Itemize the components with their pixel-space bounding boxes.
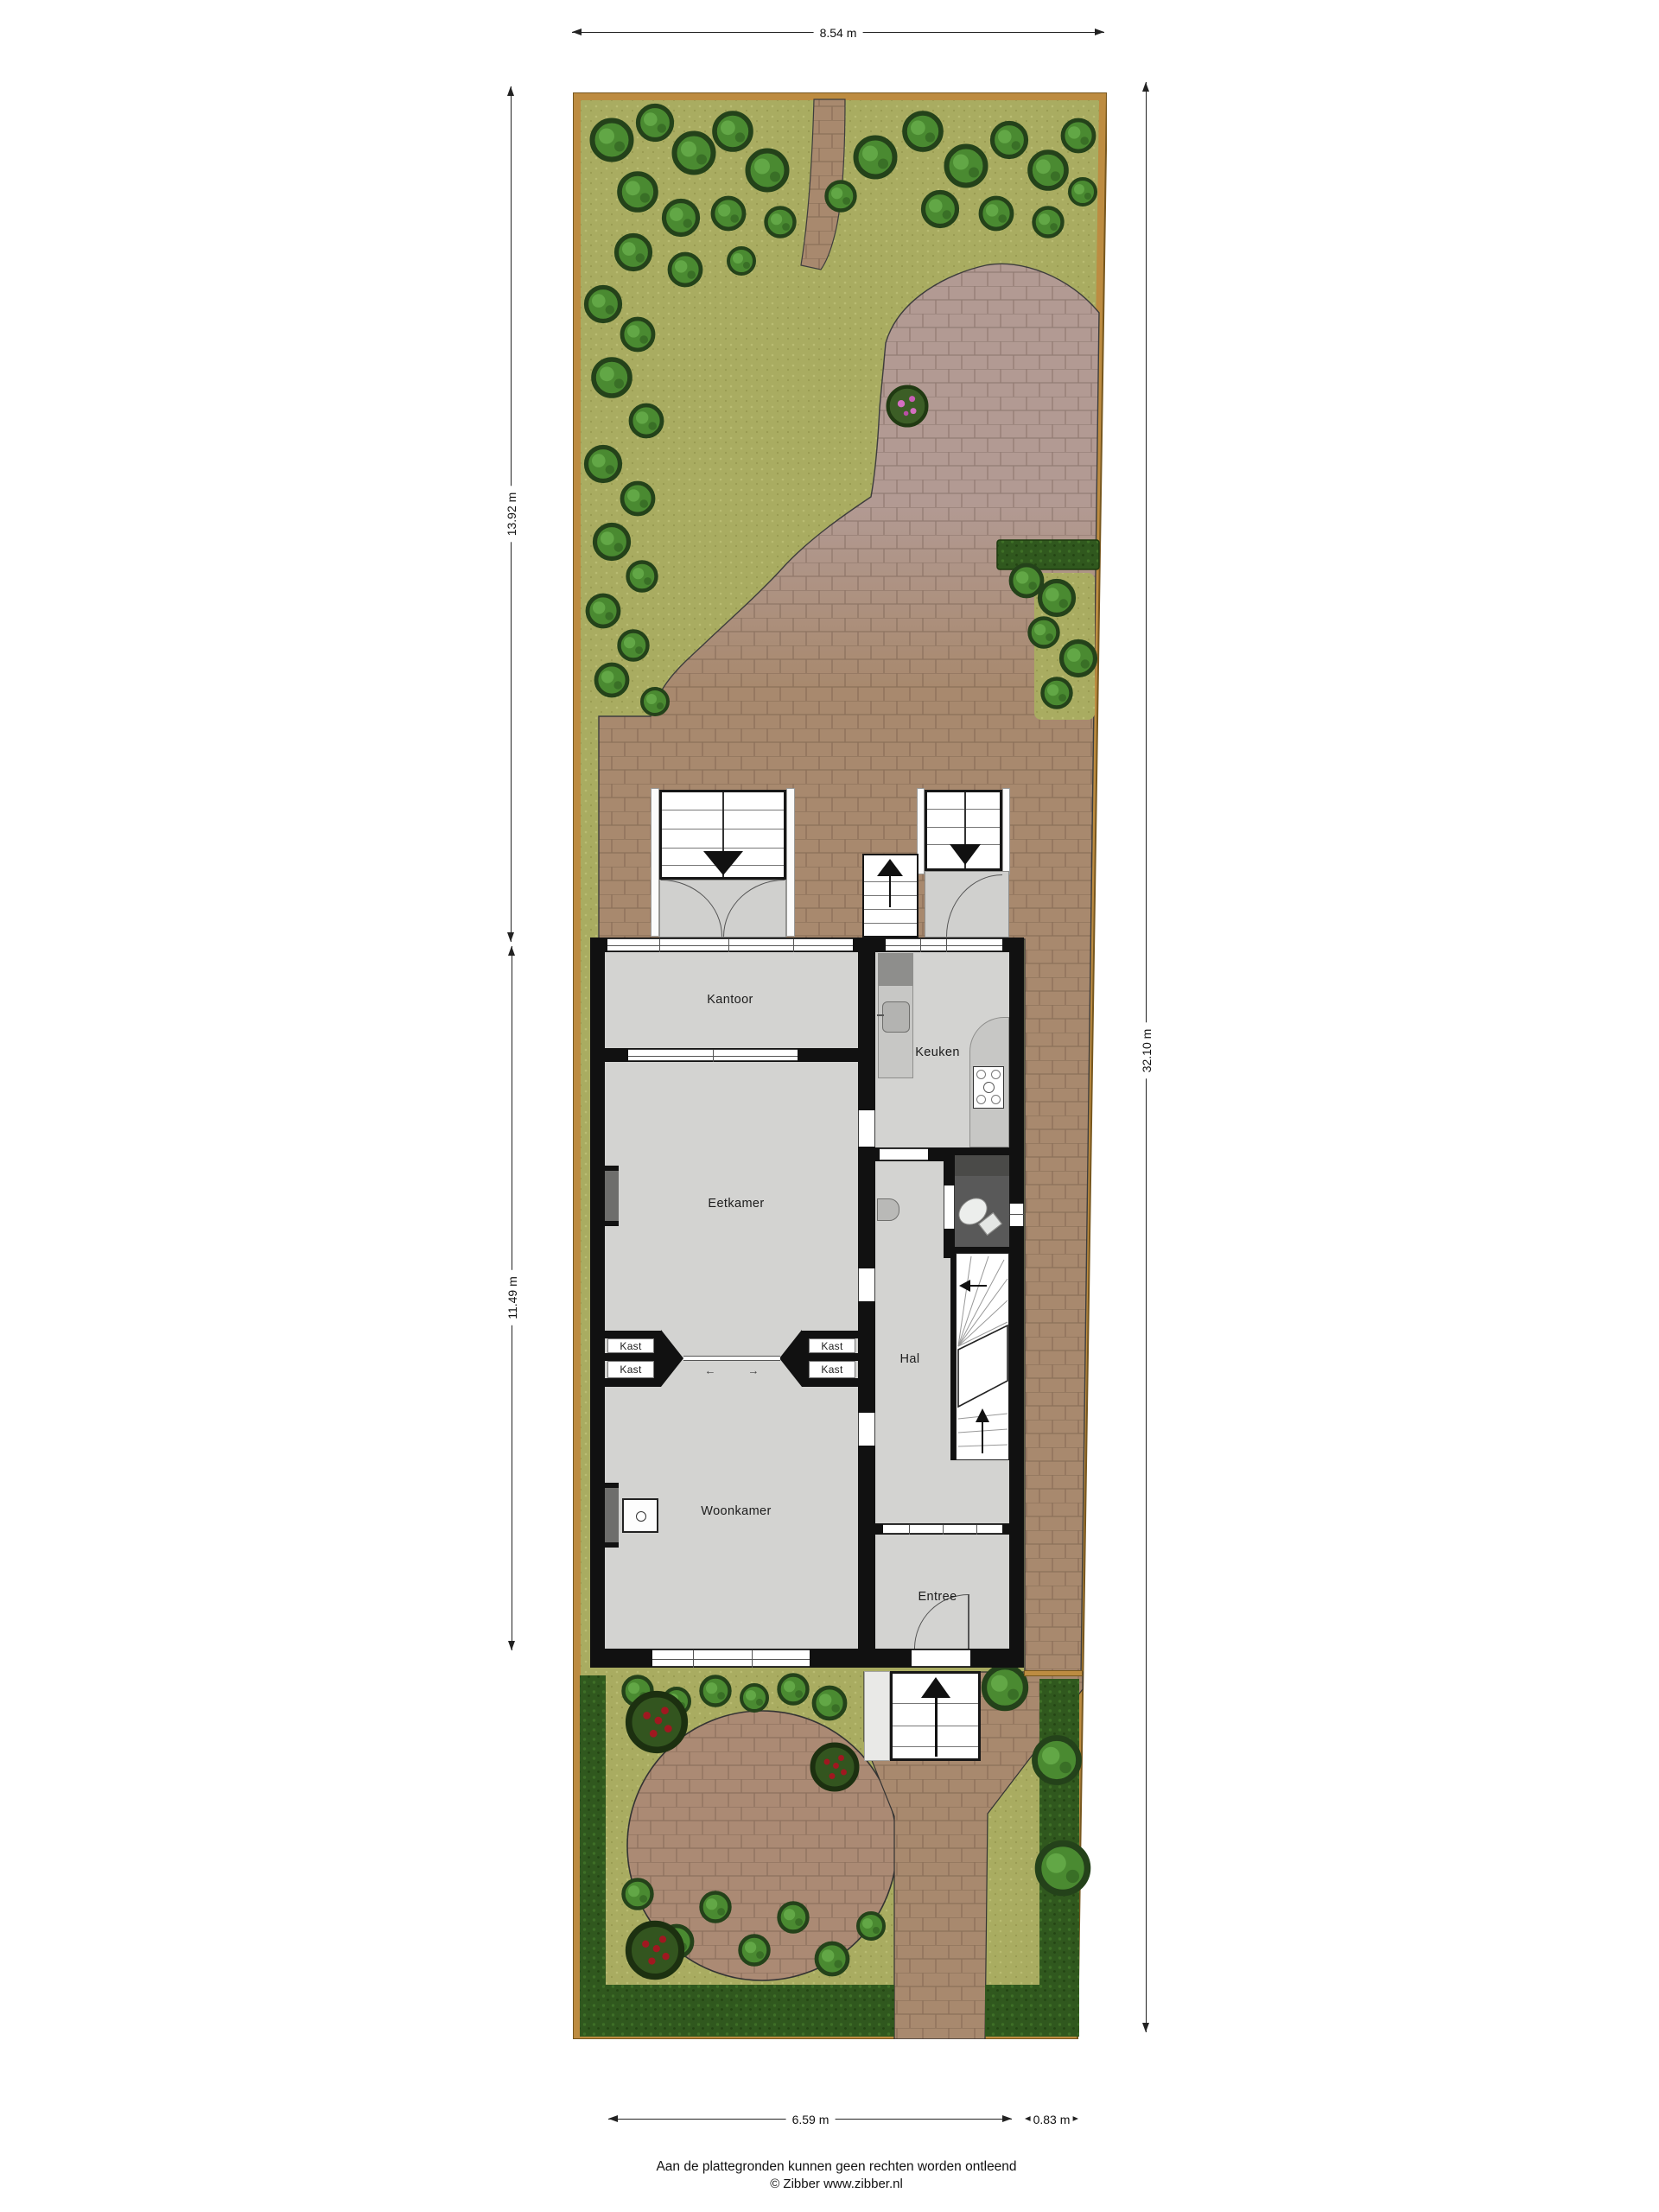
- ensuite-post: [654, 1331, 661, 1387]
- kast-box: Kast: [809, 1361, 855, 1378]
- woonkamer-front-window: [652, 1649, 810, 1667]
- toilet-window: [1009, 1204, 1024, 1226]
- kitchen-sink: [882, 1001, 910, 1033]
- staircase: [956, 1253, 1009, 1460]
- dimension-left-upper-label: 13.92 m: [505, 486, 518, 543]
- toilet-door-opening: [944, 1185, 955, 1229]
- hedge-left: [580, 1675, 606, 2034]
- front-door-opening: [912, 1649, 970, 1667]
- ensuite-bar: [802, 1353, 858, 1361]
- basement-stairs-right: [925, 790, 1002, 871]
- toilet-cabinet: [955, 1155, 1009, 1176]
- ensuite-bar: [605, 1331, 661, 1338]
- garden-up-steps: [862, 854, 918, 938]
- floorplan-page: ← → Kast Kast Kast Kast: [0, 0, 1659, 2212]
- kitchen-stair-rail-right: [1002, 788, 1010, 874]
- ensuite-bar: [802, 1331, 858, 1338]
- stairs-down-arrow-icon: [950, 844, 981, 865]
- kast-label: Kast: [821, 1363, 842, 1376]
- front-door-leaf: [968, 1594, 969, 1649]
- stove-cooktop: [973, 1066, 1004, 1109]
- wood-stove: [622, 1498, 658, 1533]
- kantoor-rear-doors: [607, 938, 853, 951]
- wall-left: [590, 938, 605, 1668]
- entrance-landing: [864, 1671, 890, 1761]
- side-gate: [1024, 1670, 1083, 1676]
- ensuite-bar: [605, 1353, 661, 1361]
- kast-box: Kast: [607, 1338, 654, 1353]
- kitchen-counter-right: [969, 1017, 1009, 1147]
- hal-entree-window: [883, 1524, 1002, 1534]
- steps-up-arrow-icon: [921, 1677, 950, 1698]
- kitchen-counter-left: [878, 953, 913, 1078]
- stairs-up-arrow-icon: [877, 859, 903, 876]
- ensuite-pocket-left: [661, 1330, 683, 1387]
- slide-right-icon: →: [748, 1364, 760, 1377]
- spine-opening-3: [858, 1413, 875, 1446]
- dimension-bottom-main-label: 6.59 m: [786, 2113, 836, 2126]
- basement-stairs-left: [659, 790, 786, 880]
- dimension-right-label: 32.10 m: [1140, 1023, 1154, 1079]
- spine-opening-2: [858, 1268, 875, 1301]
- wall-right: [1009, 938, 1024, 1668]
- keuken-rear-door-opening: [886, 938, 1002, 951]
- kast-box: Kast: [809, 1338, 855, 1353]
- spine-opening-1: [858, 1110, 875, 1147]
- footer-disclaimer: Aan de plattegronden kunnen geen rechten…: [491, 2158, 1182, 2176]
- kantoor-divider-window: [628, 1049, 798, 1061]
- basement-stair-rail-right: [786, 788, 795, 937]
- footer-copyright: © Zibber www.zibber.nl: [491, 2176, 1182, 2193]
- ensuite-bar: [605, 1378, 661, 1387]
- stairs-down-arrow-icon: [703, 851, 743, 875]
- ensuite-pocket-right: [779, 1330, 802, 1387]
- hedge-bottom-right: [985, 1985, 1041, 2037]
- kast-label: Kast: [620, 1340, 641, 1352]
- room-label-keuken: Keuken: [915, 1046, 960, 1059]
- sliding-door-track: [683, 1356, 780, 1361]
- hal-basin: [877, 1198, 899, 1221]
- hedge-block: [997, 540, 1099, 569]
- dimension-bottom-side-label: 0.83 m: [1031, 2113, 1073, 2126]
- dimension-left-lower-label: 11.49 m: [505, 1270, 519, 1325]
- room-label-kantoor: Kantoor: [707, 993, 753, 1007]
- woonkamer-niche: [605, 1483, 619, 1548]
- room-label-hal: Hal: [900, 1352, 920, 1366]
- dimension-top-label: 8.54 m: [814, 26, 863, 40]
- ensuite-post: [802, 1331, 809, 1387]
- kast-box: Kast: [607, 1361, 654, 1378]
- kast-label: Kast: [821, 1340, 842, 1352]
- room-label-eetkamer: Eetkamer: [708, 1197, 764, 1211]
- hedge-bottom: [580, 1985, 894, 2037]
- footer: Aan de plattegronden kunnen geen rechten…: [491, 2158, 1182, 2193]
- room-label-entree: Entree: [918, 1590, 957, 1604]
- room-label-woonkamer: Woonkamer: [701, 1504, 772, 1518]
- slide-left-icon: ←: [705, 1364, 716, 1377]
- keuken-hal-door: [880, 1148, 928, 1160]
- kast-label: Kast: [620, 1363, 641, 1376]
- basement-stair-rail-left: [651, 788, 659, 937]
- front-steps: [890, 1671, 981, 1761]
- ensuite-bar: [802, 1378, 858, 1387]
- eetkamer-niche: [605, 1166, 619, 1226]
